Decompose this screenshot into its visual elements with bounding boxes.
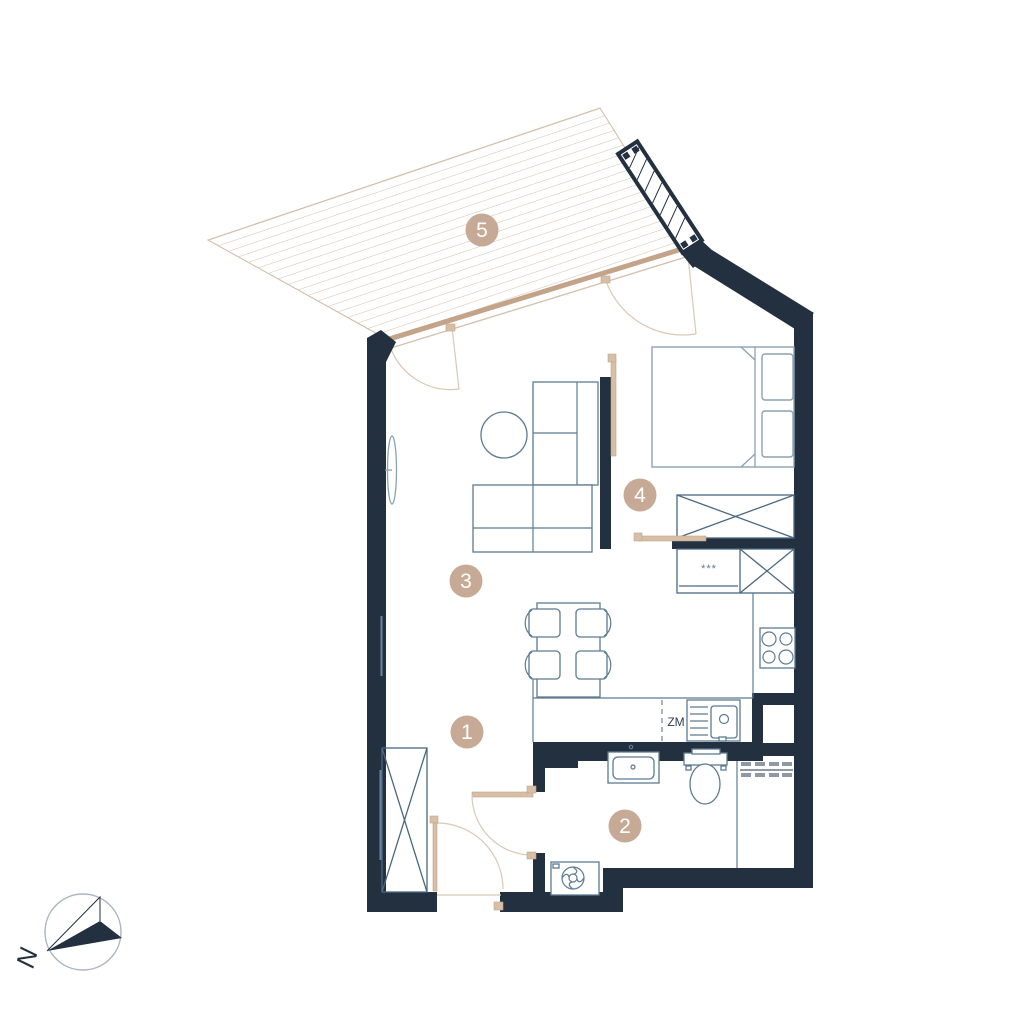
door-hinge-mark — [446, 324, 455, 331]
wall-partition-living-bedroom — [600, 377, 611, 549]
terrace-door-leaf-right — [688, 256, 696, 334]
fridge-stars-label: *** — [701, 563, 717, 575]
dishwasher-label: ZM — [667, 715, 684, 729]
bathroom-door-arc — [472, 795, 532, 855]
living-room — [385, 382, 611, 697]
terrace-door-leaf-left — [452, 327, 459, 389]
walls — [367, 239, 814, 912]
wall-bath-left-upper — [533, 742, 545, 792]
dining-chair — [576, 609, 611, 637]
floor-plan-svg: *** ZM — [0, 0, 1024, 1024]
north-arrow-icon — [47, 921, 122, 951]
coffee-table — [481, 412, 527, 458]
entrance-door-leaf — [433, 823, 437, 891]
sink-drain — [719, 737, 726, 741]
door-hinge-mark — [527, 852, 536, 859]
dining-chair — [525, 609, 560, 637]
door-hinge-mark — [494, 902, 503, 910]
duct-wall-bottom — [752, 743, 795, 756]
radiator — [385, 436, 397, 504]
partition-sliding-door — [611, 359, 616, 456]
compass: N — [10, 894, 122, 970]
terrace-door-arc-left — [390, 346, 459, 390]
terrace-door-arc-right — [606, 281, 696, 335]
pillow — [762, 354, 793, 400]
door-hinge-mark — [601, 276, 610, 283]
door-hinge-mark — [527, 786, 536, 793]
bedroom-sliding-door — [638, 536, 706, 541]
hall — [382, 748, 503, 910]
toilet — [684, 749, 727, 804]
wall-bottom-right — [620, 868, 813, 888]
dining-chair — [525, 651, 560, 679]
door-hinge-mark — [430, 816, 438, 823]
bathroom-door-leaf — [472, 792, 533, 797]
sink-basin — [711, 706, 737, 738]
entrance-door-arc — [437, 823, 503, 889]
room-marker-2-label: 2 — [619, 815, 631, 838]
towel-radiator — [740, 762, 793, 777]
wall-diagonal — [694, 250, 814, 329]
room-marker-3-label: 3 — [460, 570, 472, 593]
room-marker-5-label: 5 — [476, 219, 488, 242]
sliding-door-handle — [608, 354, 616, 362]
wall-bottom-hall — [367, 892, 437, 912]
terrace-deck-hatch — [208, 108, 688, 341]
floor-plan: *** ZM — [0, 0, 1024, 1024]
wall-left — [367, 348, 386, 912]
room-marker-4-label: 4 — [634, 484, 646, 507]
room-marker-1-label: 1 — [461, 721, 473, 744]
washing-machine — [551, 862, 599, 895]
pillow — [762, 411, 793, 457]
sliding-door-handle — [634, 533, 642, 541]
bedroom: *** — [608, 347, 794, 593]
wall-right — [794, 312, 813, 888]
dining-chair — [576, 651, 611, 679]
north-letter: N — [10, 944, 44, 970]
